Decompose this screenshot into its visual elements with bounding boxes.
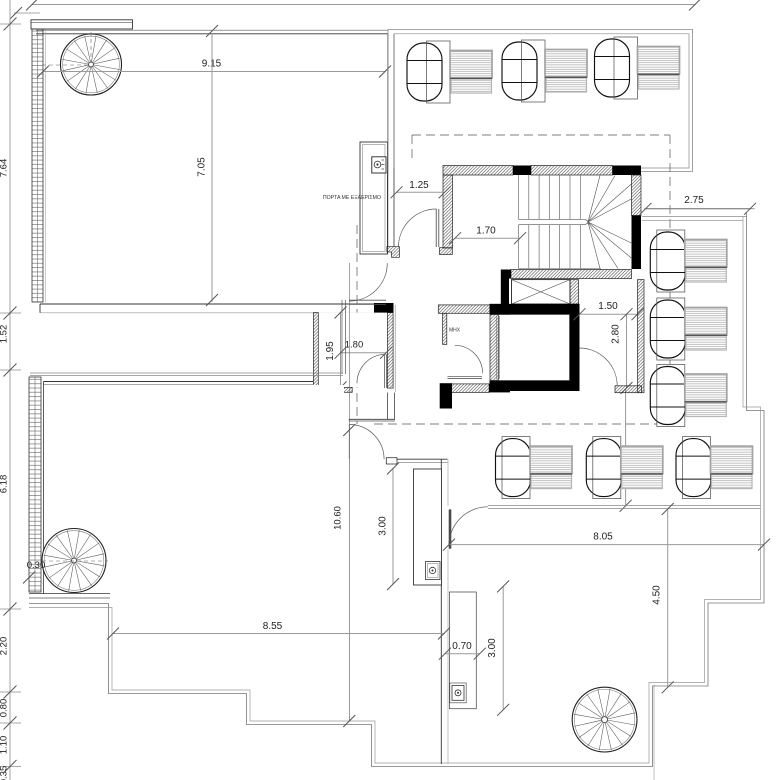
svg-text:0.80: 0.80 xyxy=(0,699,10,718)
svg-text:1.10: 1.10 xyxy=(0,736,10,755)
svg-text:7.05: 7.05 xyxy=(197,157,208,177)
svg-text:10.60: 10.60 xyxy=(333,506,344,530)
svg-text:1.25: 1.25 xyxy=(409,180,429,191)
svg-text:4.50: 4.50 xyxy=(652,585,663,605)
svg-text:ΠΟΡΤΑ ΜΕ ΕΞΑΕΡΙΣΜΟ: ΠΟΡΤΑ ΜΕ ΕΞΑΕΡΙΣΜΟ xyxy=(323,195,381,201)
svg-text:3.00: 3.00 xyxy=(487,638,498,658)
svg-text:0.70: 0.70 xyxy=(452,641,472,652)
svg-text:1.95: 1.95 xyxy=(325,341,336,361)
svg-text:1.70: 1.70 xyxy=(476,226,496,237)
svg-text:0.35: 0.35 xyxy=(0,766,10,780)
svg-text:ΜΗΧ: ΜΗΧ xyxy=(449,328,461,334)
svg-text:8.05: 8.05 xyxy=(593,532,613,543)
svg-text:1.50: 1.50 xyxy=(598,301,618,312)
svg-text:0.30: 0.30 xyxy=(27,560,46,571)
svg-text:2.20: 2.20 xyxy=(0,637,10,656)
svg-text:2.75: 2.75 xyxy=(684,195,704,206)
svg-text:7.64: 7.64 xyxy=(0,159,10,178)
svg-text:6.18: 6.18 xyxy=(0,475,10,494)
svg-text:8.55: 8.55 xyxy=(263,621,283,632)
svg-text:1.80: 1.80 xyxy=(345,340,364,351)
svg-text:2.80: 2.80 xyxy=(611,324,622,344)
svg-text:3.00: 3.00 xyxy=(378,516,389,536)
svg-text:1.52: 1.52 xyxy=(0,325,10,344)
